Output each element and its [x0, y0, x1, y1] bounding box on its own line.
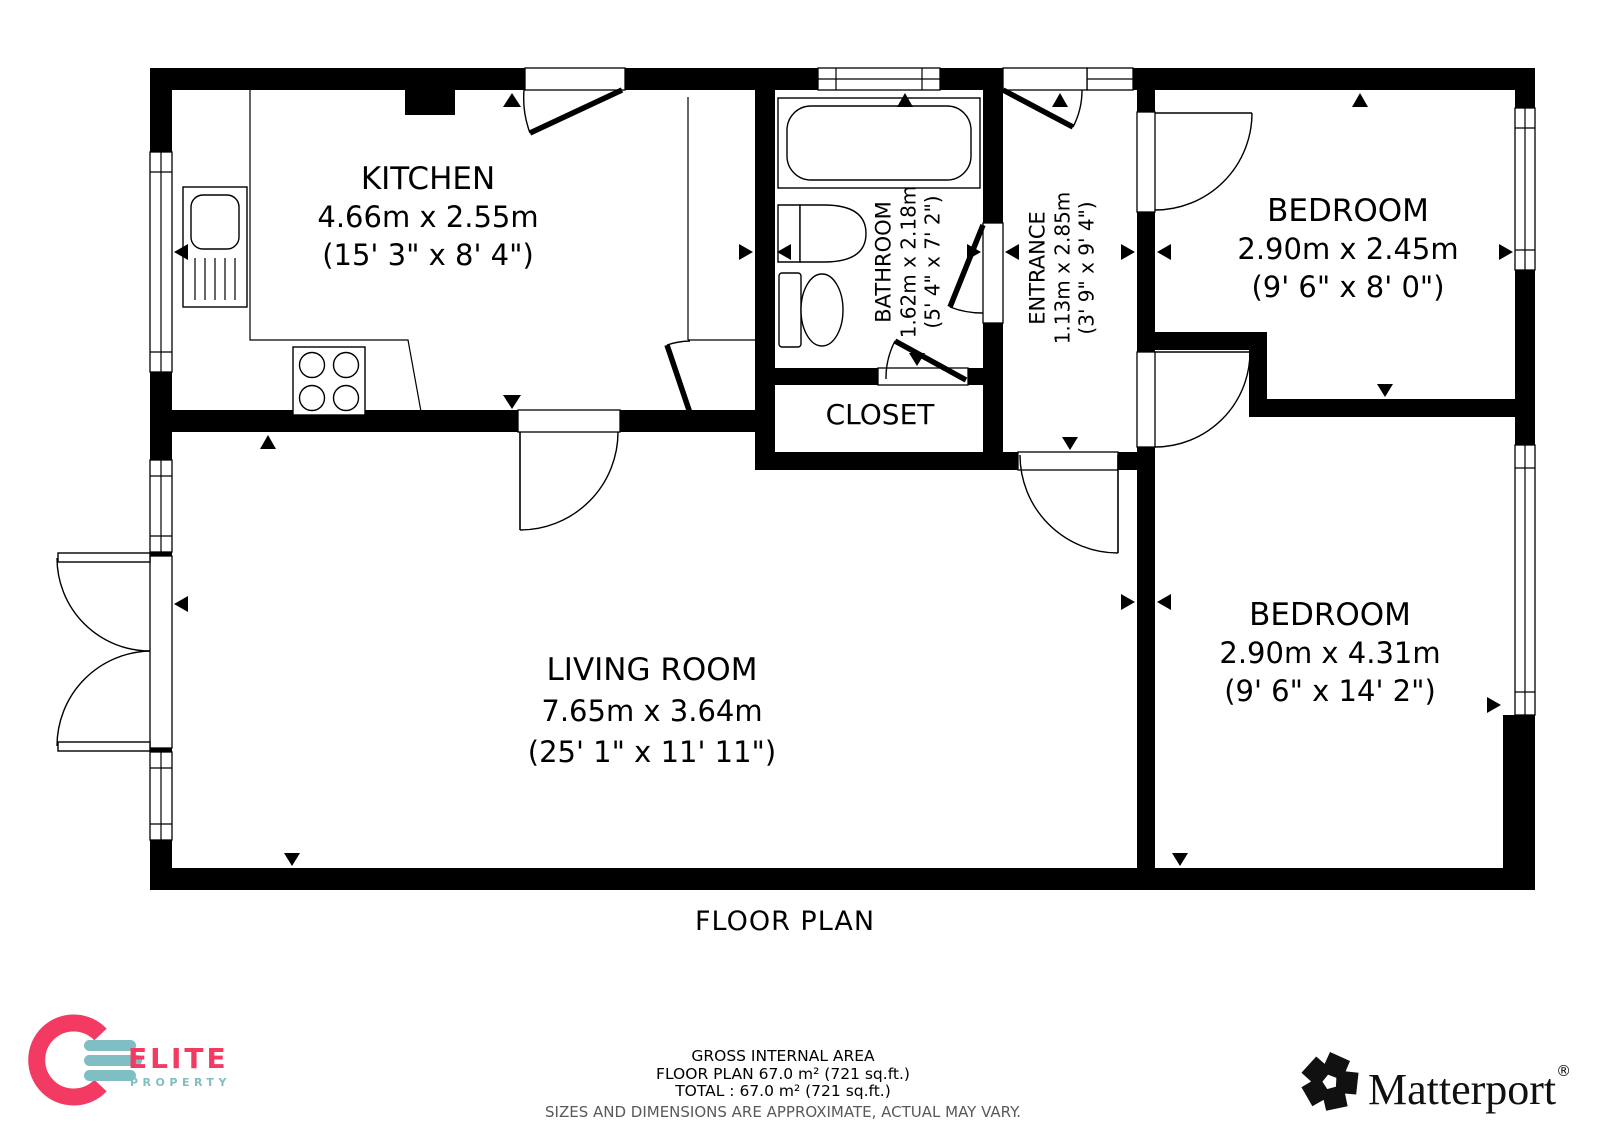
entrance-name: ENTRANCE	[1026, 192, 1051, 345]
window-bathroom-top	[818, 68, 940, 90]
footer: GROSS INTERNAL AREA FLOOR PLAN 67.0 m² (…	[545, 1048, 1021, 1121]
door-entry	[1003, 90, 1082, 127]
elite-title: ELITE	[128, 1042, 229, 1075]
bathroom-name: BATHROOM	[872, 186, 897, 339]
entrance-metric: 1.13m x 2.85m	[1051, 192, 1075, 345]
matterport-logo: Matterport®	[1292, 1040, 1592, 1120]
living-room-metric: 7.65m x 3.64m	[528, 691, 776, 732]
kitchen-sink	[183, 187, 247, 307]
toilet	[779, 273, 843, 347]
matterport-wordmark: Matterport®	[1368, 1062, 1571, 1115]
door-bedroom-bottom	[1155, 352, 1250, 447]
gross-internal-area: GROSS INTERNAL AREA	[545, 1048, 1021, 1066]
floor-plan-area: FLOOR PLAN 67.0 m² (721 sq.ft.)	[545, 1066, 1021, 1084]
matterport-pinwheel-icon	[1298, 1050, 1362, 1114]
bedroom-bottom-name: BEDROOM	[1219, 596, 1440, 634]
bathroom-metric: 1.62m x 2.18m	[897, 186, 921, 339]
bedroom-top-imperial: (9' 6" x 8' 0")	[1237, 268, 1458, 306]
floorplan-page: KITCHEN 4.66m x 2.55m (15' 3" x 8' 4") L…	[0, 0, 1600, 1131]
window-bedroom-bottom-right	[1515, 445, 1535, 715]
window-living-left-upper	[150, 460, 172, 552]
window-kitchen-left	[150, 152, 172, 372]
window-entrance-top	[1087, 68, 1133, 90]
window-living-left-lower	[150, 752, 172, 840]
entrance-label: ENTRANCE 1.13m x 2.85m (3' 9" x 9' 4")	[1026, 192, 1099, 345]
bedroom-top-name: BEDROOM	[1237, 192, 1458, 230]
kitchen-imperial: (15' 3" x 8' 4")	[317, 236, 538, 274]
window-bedroom-top-right	[1515, 108, 1535, 270]
bedroom-bottom-imperial: (9' 6" x 14' 2")	[1219, 672, 1440, 710]
bedroom-bottom-metric: 2.90m x 4.31m	[1219, 634, 1440, 672]
total-area: TOTAL : 67.0 m² (721 sq.ft.)	[545, 1083, 1021, 1101]
french-doors-living	[57, 553, 150, 751]
bedroom-top-label: BEDROOM 2.90m x 2.45m (9' 6" x 8' 0")	[1237, 192, 1458, 306]
disclaimer: SIZES AND DIMENSIONS ARE APPROXIMATE, AC…	[545, 1104, 1021, 1122]
bathroom-sink	[778, 205, 866, 262]
fixtures	[183, 90, 980, 417]
floorplan-drawing	[0, 0, 1600, 1131]
living-room-label: LIVING ROOM 7.65m x 3.64m (25' 1" x 11' …	[528, 650, 776, 773]
stove	[293, 347, 365, 415]
living-room-name: LIVING ROOM	[528, 650, 776, 691]
entrance-imperial: (3' 9" x 9' 4")	[1075, 192, 1099, 345]
door-kitchen-exterior	[524, 90, 622, 133]
registered-mark: ®	[1556, 1062, 1571, 1080]
kitchen-label: KITCHEN 4.66m x 2.55m (15' 3" x 8' 4")	[317, 160, 538, 274]
bathroom-label: BATHROOM 1.62m x 2.18m (5' 4" x 7' 2")	[872, 186, 945, 339]
door-bathroom	[950, 225, 983, 313]
closet-label: CLOSET	[826, 398, 935, 431]
elite-subtitle: PROPERTY	[130, 1076, 231, 1089]
bedroom-bottom-label: BEDROOM 2.90m x 4.31m (9' 6" x 14' 2")	[1219, 596, 1440, 710]
elite-property-logo: ELITE PROPERTY	[28, 1012, 258, 1112]
plan-caption: FLOOR PLAN	[695, 906, 875, 937]
bathroom-imperial: (5' 4" x 7' 2")	[921, 186, 945, 339]
door-kitchen-living	[520, 432, 618, 530]
bedroom-top-metric: 2.90m x 2.45m	[1237, 230, 1458, 268]
living-room-imperial: (25' 1" x 11' 11")	[528, 732, 776, 773]
kitchen-name: KITCHEN	[317, 160, 538, 198]
door-kitchen-inner	[667, 97, 763, 413]
bathtub	[778, 98, 980, 188]
kitchen-metric: 4.66m x 2.55m	[317, 198, 538, 236]
